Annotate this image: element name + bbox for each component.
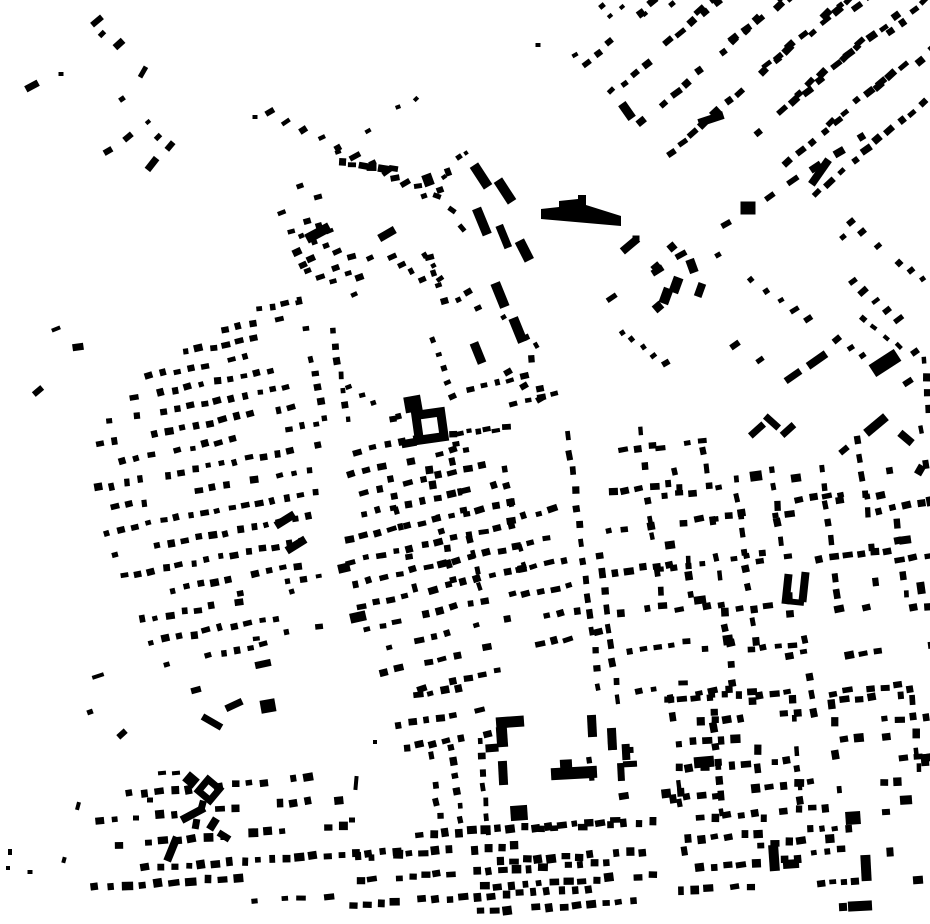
- building: [233, 646, 241, 654]
- building: [709, 722, 718, 733]
- building: [711, 864, 718, 871]
- building: [231, 804, 239, 812]
- building: [542, 887, 550, 896]
- building: [271, 544, 280, 551]
- building: [494, 379, 500, 386]
- building: [764, 191, 776, 202]
- building: [839, 233, 847, 241]
- building: [821, 804, 829, 813]
- building: [909, 603, 918, 612]
- building: [277, 799, 284, 808]
- building: [424, 659, 434, 666]
- building: [843, 0, 853, 5]
- building: [844, 650, 855, 659]
- building: [677, 696, 688, 703]
- building: [753, 128, 763, 137]
- building: [775, 643, 782, 648]
- building: [430, 262, 436, 268]
- building: [747, 884, 755, 890]
- building: [517, 544, 523, 552]
- building: [686, 16, 697, 27]
- building: [565, 582, 572, 589]
- building: [755, 356, 764, 365]
- building: [626, 648, 633, 655]
- building: [232, 780, 239, 787]
- building: [157, 836, 168, 844]
- building: [448, 457, 456, 466]
- building: [212, 396, 222, 405]
- building: [719, 808, 725, 816]
- building: [244, 454, 253, 461]
- building: [925, 405, 930, 413]
- building: [837, 845, 846, 852]
- building: [474, 566, 480, 575]
- building: [687, 127, 699, 139]
- building: [348, 162, 356, 167]
- building: [294, 853, 305, 862]
- building: [856, 454, 863, 463]
- building: [525, 397, 532, 403]
- building: [472, 207, 492, 237]
- building: [390, 174, 400, 181]
- building: [916, 582, 926, 595]
- building: [634, 687, 643, 694]
- building: [217, 876, 227, 883]
- building: [285, 578, 291, 584]
- building: [550, 586, 561, 594]
- building: [263, 522, 269, 529]
- building: [485, 844, 493, 852]
- building: [377, 462, 387, 470]
- building: [578, 824, 588, 831]
- building: [694, 515, 705, 523]
- building: [210, 345, 218, 351]
- building: [477, 461, 486, 469]
- building: [259, 453, 267, 461]
- building: [227, 356, 236, 363]
- building: [404, 500, 412, 508]
- building: [443, 379, 451, 386]
- building: [711, 709, 718, 716]
- building: [221, 650, 227, 657]
- building: [694, 863, 704, 872]
- building: [865, 30, 878, 42]
- building: [893, 777, 902, 786]
- building: [24, 80, 40, 93]
- building: [586, 850, 594, 859]
- building: [769, 466, 775, 473]
- building: [150, 430, 158, 438]
- building: [759, 644, 767, 651]
- building: [640, 343, 647, 350]
- building: [655, 445, 666, 451]
- building: [347, 253, 357, 261]
- building: [463, 150, 469, 156]
- building: [618, 446, 629, 453]
- building: [531, 903, 540, 910]
- building: [615, 694, 620, 704]
- building: [748, 646, 756, 652]
- building: [854, 435, 862, 444]
- building: [895, 717, 905, 723]
- building: [190, 446, 196, 452]
- building: [414, 636, 425, 644]
- building: [770, 483, 776, 491]
- building: [859, 314, 868, 323]
- building: [665, 480, 671, 488]
- building: [634, 485, 643, 492]
- building: [676, 741, 683, 748]
- building: [714, 251, 722, 258]
- building: [296, 492, 304, 498]
- building: [324, 893, 335, 900]
- building: [641, 462, 648, 470]
- building: [650, 352, 658, 359]
- building: [386, 525, 397, 533]
- building: [899, 535, 912, 545]
- building: [772, 512, 779, 518]
- building: [463, 287, 473, 296]
- building: [807, 825, 814, 832]
- building: [115, 842, 123, 849]
- building: [864, 494, 871, 500]
- building: [311, 370, 319, 376]
- building: [122, 882, 134, 891]
- building: [889, 504, 897, 511]
- building: [377, 226, 397, 242]
- building: [579, 558, 586, 566]
- building: [855, 696, 864, 703]
- building: [583, 576, 590, 585]
- building: [218, 553, 224, 559]
- building: [425, 465, 434, 474]
- building: [595, 552, 603, 559]
- building: [490, 481, 498, 490]
- building: [848, 900, 872, 911]
- building: [773, 0, 785, 12]
- building: [893, 314, 904, 324]
- building: [95, 817, 104, 825]
- building: [763, 602, 774, 609]
- building: [171, 864, 178, 870]
- building: [772, 759, 778, 765]
- building: [592, 647, 598, 653]
- building: [703, 884, 714, 892]
- building: [807, 778, 815, 785]
- building: [423, 716, 429, 723]
- building: [586, 757, 592, 764]
- building: [245, 780, 252, 786]
- building: [546, 504, 558, 514]
- building: [741, 564, 750, 573]
- building: [676, 764, 683, 771]
- building: [418, 276, 427, 284]
- building: [155, 810, 165, 819]
- building: [51, 325, 61, 332]
- building: [603, 872, 614, 882]
- building: [761, 814, 767, 822]
- building: [607, 86, 616, 94]
- building: [258, 640, 267, 647]
- building: [661, 492, 668, 499]
- building: [387, 252, 397, 261]
- building: [811, 850, 817, 856]
- building: [358, 489, 369, 497]
- building: [923, 373, 930, 381]
- building: [740, 23, 752, 34]
- building: [565, 450, 573, 461]
- building: [659, 287, 674, 305]
- building: [730, 883, 740, 890]
- building: [116, 526, 125, 534]
- building: [858, 471, 866, 482]
- building: [675, 490, 683, 496]
- building: [269, 386, 276, 393]
- building: [520, 372, 530, 380]
- building: [628, 335, 636, 343]
- building: [918, 97, 928, 107]
- building: [786, 610, 794, 618]
- building: [796, 836, 807, 845]
- building: [781, 156, 793, 167]
- building: [722, 634, 733, 645]
- building: [313, 421, 319, 427]
- building: [804, 77, 815, 88]
- building: [387, 475, 394, 483]
- building: [183, 382, 192, 391]
- building: [428, 480, 436, 489]
- building: [783, 859, 800, 869]
- building: [242, 857, 248, 866]
- building: [463, 465, 473, 473]
- building: [352, 580, 359, 588]
- building: [831, 826, 838, 832]
- building: [689, 737, 696, 745]
- building: [750, 617, 756, 626]
- building: [272, 616, 279, 623]
- building: [423, 564, 434, 571]
- building: [899, 571, 907, 580]
- building: [669, 794, 677, 804]
- building: [460, 507, 468, 514]
- building: [674, 249, 687, 260]
- building: [709, 689, 716, 698]
- building: [699, 446, 707, 455]
- building: [298, 125, 308, 135]
- building: [578, 539, 584, 548]
- landmark-courtyard-ring-building: [416, 412, 444, 440]
- building: [431, 633, 438, 640]
- building: [492, 502, 501, 510]
- building: [538, 863, 548, 871]
- building: [446, 489, 457, 498]
- building: [434, 495, 443, 502]
- building: [480, 882, 490, 889]
- building: [298, 233, 305, 239]
- building: [92, 672, 105, 680]
- building: [605, 528, 612, 534]
- building: [216, 623, 223, 632]
- building: [786, 175, 799, 187]
- building: [414, 740, 424, 749]
- building: [902, 377, 914, 387]
- building: [253, 115, 258, 119]
- building: [780, 782, 788, 790]
- building: [717, 570, 722, 580]
- building: [133, 570, 142, 578]
- building: [281, 384, 290, 391]
- building: [576, 521, 583, 528]
- building: [378, 899, 385, 907]
- building: [909, 5, 919, 15]
- building: [593, 665, 601, 672]
- building: [735, 605, 744, 612]
- building: [358, 531, 368, 539]
- building: [721, 715, 732, 724]
- building: [302, 772, 313, 782]
- building: [485, 744, 499, 753]
- building: [687, 591, 694, 598]
- building: [250, 570, 260, 579]
- building: [563, 878, 573, 885]
- building: [910, 347, 920, 357]
- building: [828, 691, 837, 698]
- building: [403, 521, 412, 529]
- building: [619, 329, 626, 336]
- building: [303, 267, 311, 274]
- building: [690, 695, 701, 702]
- building: [395, 722, 402, 730]
- building: [227, 395, 235, 404]
- building: [738, 812, 745, 819]
- building: [606, 292, 618, 302]
- building: [894, 258, 903, 267]
- building: [533, 854, 543, 864]
- building: [594, 49, 604, 58]
- building: [415, 832, 424, 838]
- building: [535, 880, 541, 887]
- building: [421, 541, 429, 548]
- building: [510, 841, 519, 850]
- building: [735, 861, 746, 868]
- building: [635, 116, 647, 127]
- building: [428, 751, 434, 760]
- building: [778, 536, 784, 546]
- building: [124, 500, 133, 508]
- building: [379, 668, 389, 677]
- building: [344, 535, 354, 544]
- building: [231, 459, 238, 467]
- building: [650, 686, 656, 692]
- building: [839, 903, 847, 911]
- building: [140, 863, 150, 872]
- building: [431, 895, 440, 903]
- building: [480, 597, 489, 605]
- building: [795, 145, 807, 156]
- building: [472, 574, 482, 583]
- building: [134, 412, 141, 419]
- building: [111, 552, 118, 559]
- building: [697, 792, 707, 800]
- building: [285, 447, 294, 455]
- building: [710, 833, 718, 840]
- building: [906, 685, 914, 693]
- building: [500, 314, 507, 320]
- building: [480, 783, 486, 792]
- building: [620, 80, 628, 88]
- building: [451, 772, 458, 779]
- building: [28, 870, 33, 874]
- building: [922, 713, 930, 721]
- building: [571, 52, 578, 58]
- building: [653, 644, 662, 650]
- building: [719, 48, 728, 57]
- building: [900, 795, 913, 805]
- building: [827, 699, 835, 710]
- building: [409, 874, 416, 880]
- building: [620, 526, 628, 532]
- building: [259, 779, 268, 787]
- building: [234, 598, 244, 606]
- building: [362, 554, 369, 560]
- building: [237, 525, 245, 533]
- building: [812, 188, 822, 198]
- building: [408, 565, 417, 573]
- individual-buildings-layer: [6, 0, 929, 911]
- building: [845, 811, 861, 825]
- building: [839, 695, 850, 703]
- building: [197, 579, 205, 587]
- building: [503, 367, 513, 376]
- building: [780, 422, 797, 438]
- building: [851, 1, 863, 12]
- building: [886, 847, 894, 856]
- building: [571, 820, 577, 827]
- building: [837, 167, 846, 175]
- building: [509, 859, 519, 865]
- building: [866, 685, 875, 692]
- building: [329, 278, 337, 284]
- building: [684, 440, 691, 446]
- building: [103, 146, 114, 156]
- building: [808, 805, 817, 811]
- building: [331, 264, 340, 272]
- building: [674, 606, 684, 613]
- building: [379, 623, 386, 629]
- building: [215, 806, 225, 812]
- building: [898, 18, 908, 28]
- building: [265, 567, 272, 574]
- building: [595, 819, 606, 827]
- building: [108, 482, 115, 491]
- building: [177, 469, 186, 476]
- building: [646, 0, 658, 7]
- building: [492, 883, 502, 891]
- building: [236, 590, 244, 597]
- building: [742, 830, 749, 838]
- building: [357, 877, 365, 884]
- building: [741, 761, 752, 768]
- building: [466, 428, 472, 433]
- building: [886, 467, 894, 475]
- building: [364, 128, 371, 134]
- building: [763, 413, 781, 430]
- building: [448, 445, 458, 453]
- building: [474, 706, 485, 713]
- building: [138, 66, 148, 79]
- building: [379, 848, 386, 855]
- building: [829, 879, 836, 884]
